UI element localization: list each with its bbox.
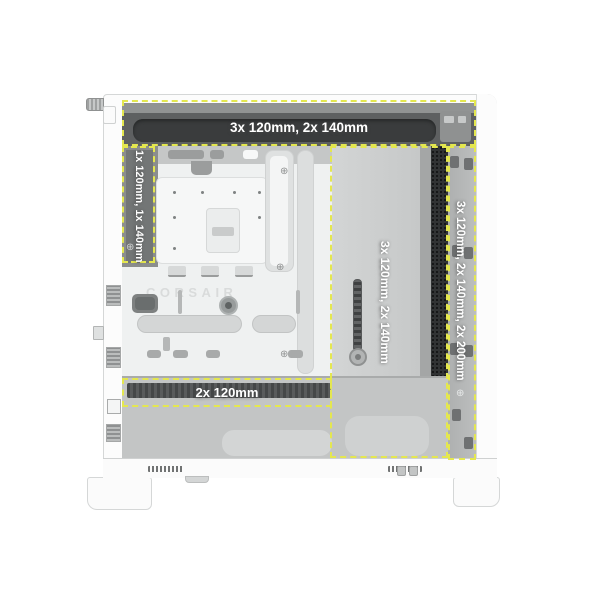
cable-tie-clip — [235, 266, 253, 277]
rail-clip — [452, 409, 461, 421]
rear-fan-zone-label: 1x 120mm, 1x 140mm — [127, 146, 151, 266]
bottom-fitting — [409, 466, 418, 476]
screw-icon: ⊕ — [280, 167, 288, 177]
cable-bundle — [222, 430, 332, 456]
gpu-antisag-rail — [353, 279, 362, 352]
tray-vertical-slot — [178, 290, 182, 314]
rear-hinge-tab — [103, 106, 116, 124]
standoff-hole — [173, 216, 176, 219]
routing-channel — [137, 315, 242, 333]
case-foot-front — [453, 477, 500, 507]
brand-logo-text: CORSAIR — [146, 285, 276, 300]
cable-grommet-inner — [135, 297, 155, 310]
top-fan-zone-label: 3x 120mm, 2x 140mm — [122, 115, 476, 139]
cable-tie-clip — [168, 266, 186, 277]
screw-icon: ⊕ — [276, 263, 284, 273]
rear-latch-tab — [93, 326, 104, 340]
tray-vertical-slot — [296, 290, 300, 314]
certification-vent-strip — [148, 466, 184, 472]
pci-slot-cover — [106, 347, 121, 368]
standoff-hole — [258, 191, 261, 194]
case-foot-rear — [87, 477, 152, 510]
pci-slot-cover — [106, 285, 121, 306]
rail-clip — [464, 158, 473, 170]
fan-hub-center — [225, 302, 232, 309]
fan-clip — [191, 161, 212, 175]
standoff-hole — [173, 191, 176, 194]
side-fan-zone-label: 3x 120mm, 2x 140mm — [373, 228, 397, 376]
pci-slot-cover — [106, 424, 121, 442]
tray-slot — [163, 337, 170, 351]
standoff-hole — [173, 247, 176, 250]
tray-slot — [206, 350, 220, 358]
standoff-hole — [233, 191, 236, 194]
tray-slot — [173, 350, 188, 358]
tray-slot — [210, 150, 224, 159]
cable-bundle — [345, 416, 429, 456]
antisag-knob-center — [355, 354, 361, 360]
thumbscrew-knob — [86, 98, 104, 111]
rear-cutout — [107, 399, 121, 414]
bottom-fan-zone-label: 2x 120mm — [122, 380, 332, 404]
standoff-hole — [258, 216, 261, 219]
molded-logo-mark — [212, 227, 234, 236]
tray-slot — [243, 150, 258, 159]
standoff-hole — [201, 191, 204, 194]
front-panel — [476, 94, 497, 478]
routing-channel — [252, 315, 296, 333]
front-fan-zone-label: 3x 120mm, 2x 140mm, 2x 200mm — [447, 182, 473, 400]
rail-clip — [464, 437, 473, 449]
tray-slot — [288, 350, 303, 358]
cable-channel-column — [297, 150, 314, 374]
rail-clip — [450, 156, 459, 168]
product-annotation-image: ⊕ ⊕ ⊕ ⊕ ⊕ CORSAIR — [0, 0, 600, 600]
tray-slot — [147, 350, 161, 358]
bottom-fitting — [397, 466, 406, 476]
bottom-latch-tab — [185, 476, 209, 483]
tray-slot — [168, 150, 204, 159]
cable-tie-clip — [201, 266, 219, 277]
